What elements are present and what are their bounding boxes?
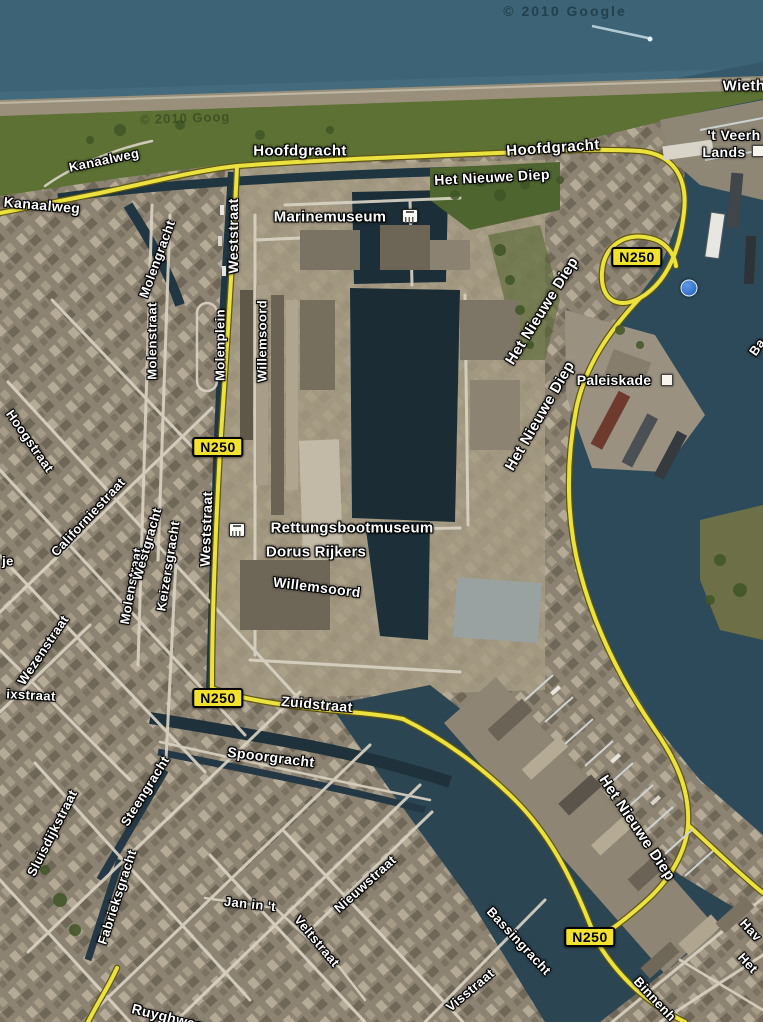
map-canvas[interactable]: Wieth't VeerhLandsHoofdgrachtHoofdgracht… [0, 0, 763, 1022]
satellite-imagery [0, 0, 763, 1022]
